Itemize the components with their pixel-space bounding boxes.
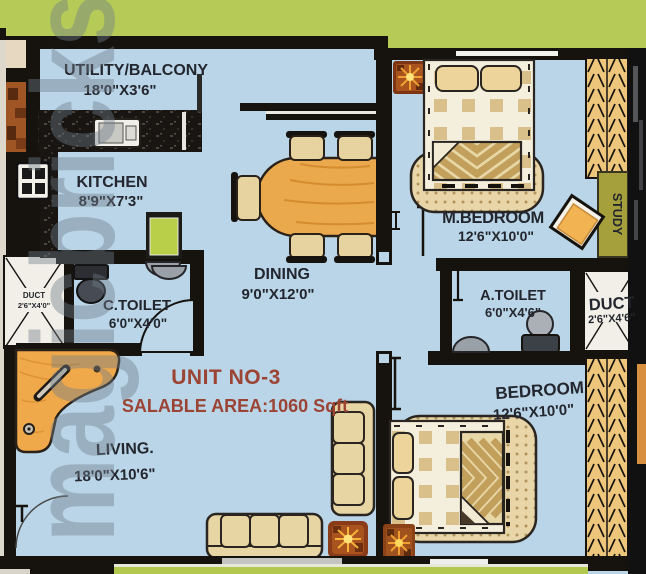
svg-text:magicbricks: magicbricks xyxy=(8,0,140,542)
svg-text:DUCT: DUCT xyxy=(588,294,635,314)
svg-text:SALABLE AREA:1060 Sqft: SALABLE AREA:1060 Sqft xyxy=(122,396,348,416)
svg-text:12'6"X10'0": 12'6"X10'0" xyxy=(458,228,534,244)
svg-text:6'0"X4'6": 6'0"X4'6" xyxy=(485,305,541,320)
svg-text:STUDY: STUDY xyxy=(610,193,624,236)
svg-text:UNIT NO-3: UNIT NO-3 xyxy=(171,366,281,389)
svg-text:2'6"X4'6": 2'6"X4'6" xyxy=(588,312,636,326)
svg-text:A.TOILET: A.TOILET xyxy=(480,288,546,304)
svg-text:DINING: DINING xyxy=(254,266,310,283)
svg-text:M.BEDROOM: M.BEDROOM xyxy=(442,209,544,227)
svg-text:9'0"X12'0": 9'0"X12'0" xyxy=(241,286,314,303)
